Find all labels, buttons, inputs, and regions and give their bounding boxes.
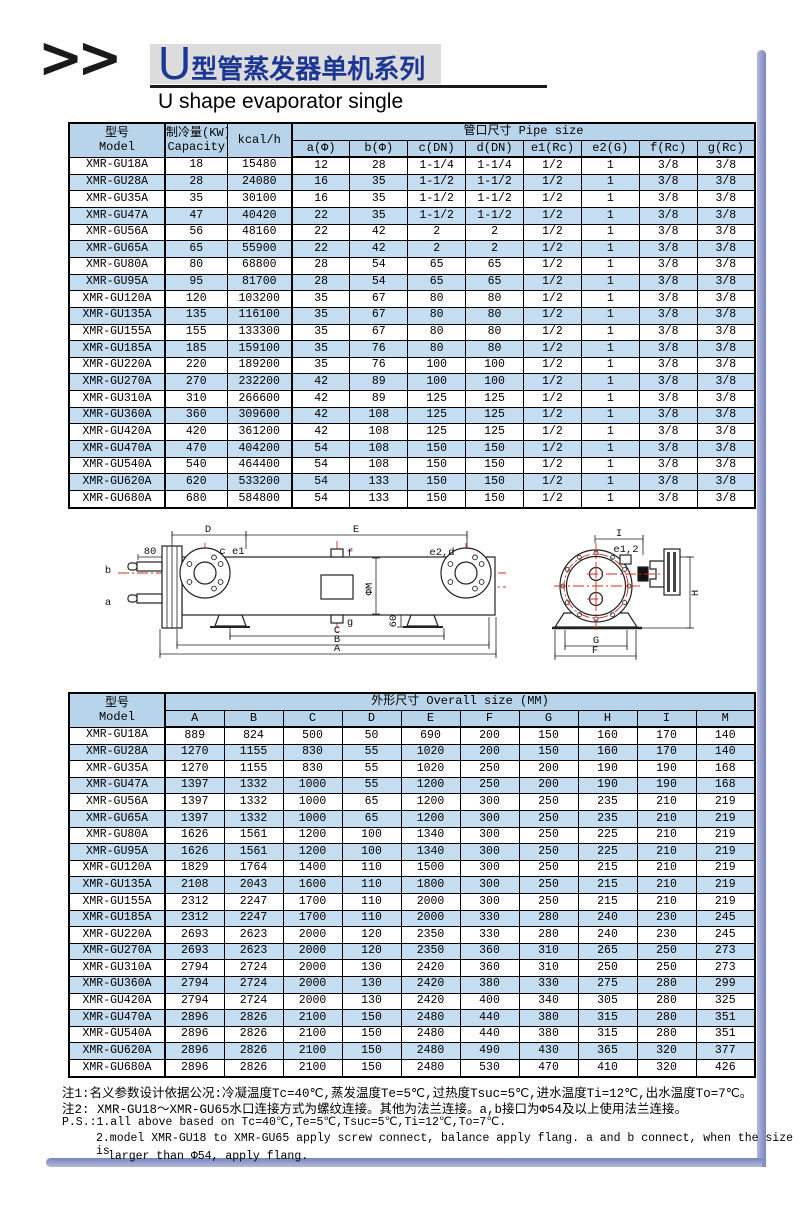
- value-cell: 250: [519, 894, 578, 911]
- value-cell: 42: [292, 374, 350, 391]
- value-cell: 210: [637, 860, 696, 877]
- model-cell: XMR-GU65A: [69, 811, 165, 828]
- value-cell: 55: [342, 761, 401, 778]
- model-cell: XMR-GU155A: [69, 894, 165, 911]
- value-cell: 1/2: [524, 291, 582, 308]
- column-header: D: [342, 710, 401, 727]
- value-cell: 2100: [283, 1010, 342, 1027]
- column-header: e1(Rc): [524, 140, 582, 157]
- column-header: a(Φ): [292, 140, 350, 157]
- value-cell: 1020: [401, 761, 460, 778]
- value-cell: 1270: [165, 761, 224, 778]
- value-cell: 2826: [224, 1043, 283, 1060]
- value-cell: 250: [578, 960, 637, 977]
- value-cell: 3/8: [697, 441, 755, 458]
- value-cell: 3/8: [639, 324, 697, 341]
- value-cell: 210: [637, 894, 696, 911]
- table-row: XMR-GU270A27023220042891001001/213/83/8: [69, 374, 755, 391]
- value-cell: 2623: [224, 927, 283, 944]
- value-cell: 140: [696, 727, 755, 744]
- value-cell: 200: [460, 744, 519, 761]
- value-cell: 215: [578, 860, 637, 877]
- value-cell: 2724: [224, 993, 283, 1010]
- value-cell: 2108: [165, 877, 224, 894]
- model-cell: XMR-GU420A: [69, 993, 165, 1010]
- value-cell: 16: [292, 174, 350, 191]
- value-cell: 1: [581, 257, 639, 274]
- model-cell: XMR-GU540A: [69, 1026, 165, 1043]
- value-cell: 250: [519, 860, 578, 877]
- value-cell: 1020: [401, 744, 460, 761]
- value-cell: 3/8: [639, 457, 697, 474]
- value-cell: 48160: [227, 224, 292, 241]
- value-cell: 65: [466, 274, 524, 291]
- page-title: U型管蒸发器单机系列: [150, 44, 441, 84]
- value-cell: 150: [408, 490, 466, 508]
- table-row: XMR-GU28A1270115583055102020015016017014…: [69, 744, 755, 761]
- value-cell: 150: [466, 474, 524, 491]
- value-cell: 377: [696, 1043, 755, 1060]
- value-cell: 1: [581, 474, 639, 491]
- value-cell: 240: [578, 910, 637, 927]
- value-cell: 1155: [224, 761, 283, 778]
- value-cell: 55900: [227, 241, 292, 258]
- value-cell: 2896: [165, 1043, 224, 1060]
- table-row: XMR-GU360A360309600421081251251/213/83/8: [69, 407, 755, 424]
- value-cell: 54: [292, 457, 350, 474]
- value-cell: 108: [350, 424, 408, 441]
- value-cell: 150: [408, 457, 466, 474]
- value-cell: 2: [466, 241, 524, 258]
- value-cell: 3/8: [697, 307, 755, 324]
- value-cell: 1500: [401, 860, 460, 877]
- value-cell: 150: [342, 1010, 401, 1027]
- model-cell: XMR-GU680A: [69, 1059, 165, 1077]
- model-cell: XMR-GU80A: [69, 827, 165, 844]
- dim-label-a: A: [334, 643, 341, 655]
- value-cell: 2000: [401, 894, 460, 911]
- value-cell: 3/8: [639, 191, 697, 208]
- value-cell: 80: [408, 324, 466, 341]
- value-cell: 690: [401, 727, 460, 744]
- value-cell: 110: [342, 910, 401, 927]
- model-cell: XMR-GU56A: [69, 224, 165, 241]
- value-cell: 1340: [401, 844, 460, 861]
- value-cell: 365: [578, 1043, 637, 1060]
- value-cell: 168: [696, 761, 755, 778]
- value-cell: 830: [283, 744, 342, 761]
- value-cell: 225: [578, 827, 637, 844]
- value-cell: 28: [292, 274, 350, 291]
- value-cell: 2312: [165, 910, 224, 927]
- value-cell: 3/8: [639, 307, 697, 324]
- model-cell: XMR-GU95A: [69, 844, 165, 861]
- table-row: XMR-GU220A269326232000120235033028024023…: [69, 927, 755, 944]
- value-cell: 108: [350, 407, 408, 424]
- model-cell: XMR-GU220A: [69, 927, 165, 944]
- capacity-header: 制冷量(KW) Capacity: [165, 123, 227, 157]
- model-cell: XMR-GU47A: [69, 777, 165, 794]
- value-cell: 490: [460, 1043, 519, 1060]
- value-cell: 55: [342, 744, 401, 761]
- value-cell: 1/2: [524, 441, 582, 458]
- value-cell: 120: [342, 927, 401, 944]
- model-header: 型号 Model: [69, 693, 165, 727]
- value-cell: 120: [165, 291, 227, 308]
- value-cell: 30100: [227, 191, 292, 208]
- value-cell: 1-1/2: [466, 174, 524, 191]
- value-cell: 280: [637, 977, 696, 994]
- value-cell: 2623: [224, 943, 283, 960]
- value-cell: 1000: [283, 811, 342, 828]
- value-cell: 533200: [227, 474, 292, 491]
- value-cell: 1/2: [524, 257, 582, 274]
- value-cell: 210: [637, 811, 696, 828]
- label-e2-d: e2,d: [429, 547, 454, 559]
- value-cell: 160: [578, 727, 637, 744]
- table-row: XMR-GU47A1397133210005512002502001901901…: [69, 777, 755, 794]
- value-cell: 470: [165, 441, 227, 458]
- value-cell: 35: [350, 174, 408, 191]
- value-cell: 1: [581, 291, 639, 308]
- value-cell: 320: [637, 1043, 696, 1060]
- column-header: g(Rc): [697, 140, 755, 157]
- model-cell: XMR-GU270A: [69, 374, 165, 391]
- value-cell: 3/8: [697, 357, 755, 374]
- value-cell: 3/8: [697, 208, 755, 225]
- value-cell: 100: [408, 374, 466, 391]
- value-cell: 300: [460, 894, 519, 911]
- value-cell: 150: [342, 1059, 401, 1077]
- column-header: F: [460, 710, 519, 727]
- value-cell: 1332: [224, 777, 283, 794]
- value-cell: 360: [165, 407, 227, 424]
- value-cell: 1700: [283, 894, 342, 911]
- value-cell: 500: [283, 727, 342, 744]
- value-cell: 130: [342, 993, 401, 1010]
- value-cell: 150: [342, 1043, 401, 1060]
- model-cell: XMR-GU18A: [69, 157, 165, 174]
- value-cell: 1/2: [524, 174, 582, 191]
- dim-label-i: I: [616, 528, 622, 540]
- value-cell: 1: [581, 208, 639, 225]
- value-cell: 1/2: [524, 224, 582, 241]
- value-cell: 300: [460, 877, 519, 894]
- value-cell: 42: [292, 391, 350, 408]
- value-cell: 65: [165, 241, 227, 258]
- value-cell: 2100: [283, 1059, 342, 1077]
- value-cell: 1: [581, 274, 639, 291]
- table-row: XMR-GU420A420361200421081251251/213/83/8: [69, 424, 755, 441]
- value-cell: 120: [342, 943, 401, 960]
- value-cell: 2100: [283, 1026, 342, 1043]
- value-cell: 65: [466, 257, 524, 274]
- value-cell: 280: [519, 910, 578, 927]
- table-row: XMR-GU47A474042022351-1/21-1/21/213/83/8: [69, 208, 755, 225]
- model-cell: XMR-GU18A: [69, 727, 165, 744]
- value-cell: 3/8: [697, 241, 755, 258]
- value-cell: 330: [519, 977, 578, 994]
- model-cell: XMR-GU310A: [69, 960, 165, 977]
- table-row: XMR-GU470A470404200541081501501/213/83/8: [69, 441, 755, 458]
- value-cell: 81700: [227, 274, 292, 291]
- value-cell: 1200: [283, 844, 342, 861]
- value-cell: 1200: [283, 827, 342, 844]
- value-cell: 16: [292, 191, 350, 208]
- value-cell: 1: [581, 241, 639, 258]
- value-cell: 133: [350, 490, 408, 508]
- table-row: XMR-GU680A289628262100150248053047041032…: [69, 1059, 755, 1077]
- dim-label-e: E: [353, 524, 359, 536]
- model-cell: XMR-GU35A: [69, 191, 165, 208]
- value-cell: 1/2: [524, 424, 582, 441]
- value-cell: 1400: [283, 860, 342, 877]
- table-row: XMR-GU540A540464400541081501501/213/83/8: [69, 457, 755, 474]
- table-row: XMR-GU120A182917641400110150030025021521…: [69, 860, 755, 877]
- value-cell: 270: [165, 374, 227, 391]
- value-cell: 2420: [401, 960, 460, 977]
- value-cell: 40420: [227, 208, 292, 225]
- value-cell: 1/2: [524, 407, 582, 424]
- value-cell: 245: [696, 927, 755, 944]
- value-cell: 1/2: [524, 474, 582, 491]
- value-cell: 108: [350, 441, 408, 458]
- value-cell: 3/8: [697, 224, 755, 241]
- value-cell: 280: [637, 993, 696, 1010]
- value-cell: 300: [460, 860, 519, 877]
- value-cell: 464400: [227, 457, 292, 474]
- value-cell: 150: [466, 490, 524, 508]
- value-cell: 351: [696, 1026, 755, 1043]
- value-cell: 159100: [227, 341, 292, 358]
- title-initial: U: [158, 45, 191, 83]
- value-cell: 3/8: [639, 474, 697, 491]
- value-cell: 3/8: [697, 341, 755, 358]
- title-text: 型管蒸发器单机系列: [191, 56, 425, 83]
- pipe-size-group-header: 管口尺寸 Pipe size: [292, 123, 755, 140]
- value-cell: 2693: [165, 927, 224, 944]
- value-cell: 3/8: [639, 257, 697, 274]
- value-cell: 3/8: [697, 407, 755, 424]
- model-cell: XMR-GU360A: [69, 977, 165, 994]
- value-cell: 35: [292, 291, 350, 308]
- model-cell: XMR-GU35A: [69, 761, 165, 778]
- value-cell: 1800: [401, 877, 460, 894]
- value-cell: 266600: [227, 391, 292, 408]
- model-cell: XMR-GU135A: [69, 307, 165, 324]
- value-cell: 1: [581, 224, 639, 241]
- value-cell: 125: [466, 407, 524, 424]
- column-header: B: [224, 710, 283, 727]
- value-cell: 310: [165, 391, 227, 408]
- model-cell: XMR-GU120A: [69, 291, 165, 308]
- value-cell: 2350: [401, 927, 460, 944]
- value-cell: 3/8: [639, 407, 697, 424]
- value-cell: 2896: [165, 1010, 224, 1027]
- value-cell: 80: [466, 291, 524, 308]
- table-row: XMR-GU65A1397133210006512003002502352102…: [69, 811, 755, 828]
- value-cell: 150: [519, 744, 578, 761]
- ps-note-2-continued: larger than Φ54, apply flang.: [108, 1150, 308, 1163]
- value-cell: 1: [581, 407, 639, 424]
- value-cell: 185: [165, 341, 227, 358]
- value-cell: 89: [350, 391, 408, 408]
- value-cell: 2480: [401, 1043, 460, 1060]
- value-cell: 150: [519, 727, 578, 744]
- value-cell: 680: [165, 490, 227, 508]
- value-cell: 300: [460, 794, 519, 811]
- value-cell: 3/8: [639, 374, 697, 391]
- value-cell: 620: [165, 474, 227, 491]
- table-row: XMR-GU620A289628262100150248049043036532…: [69, 1043, 755, 1060]
- value-cell: 42: [350, 224, 408, 241]
- column-header: H: [578, 710, 637, 727]
- value-cell: 95: [165, 274, 227, 291]
- value-cell: 824: [224, 727, 283, 744]
- dim-label-d: D: [205, 524, 211, 536]
- value-cell: 56: [165, 224, 227, 241]
- value-cell: 80: [466, 324, 524, 341]
- value-cell: 3/8: [697, 474, 755, 491]
- value-cell: 42: [292, 407, 350, 424]
- page-subtitle: U shape evaporator single: [158, 90, 403, 114]
- model-cell: XMR-GU470A: [69, 1010, 165, 1027]
- value-cell: 2480: [401, 1010, 460, 1027]
- value-cell: 200: [519, 761, 578, 778]
- table-row: XMR-GU95A9581700285465651/213/83/8: [69, 274, 755, 291]
- value-cell: 2420: [401, 993, 460, 1010]
- value-cell: 130: [342, 977, 401, 994]
- value-cell: 1/2: [524, 341, 582, 358]
- value-cell: 225: [578, 844, 637, 861]
- value-cell: 219: [696, 844, 755, 861]
- model-cell: XMR-GU120A: [69, 860, 165, 877]
- value-cell: 1397: [165, 811, 224, 828]
- port-label-a: a: [105, 597, 111, 609]
- value-cell: 305: [578, 993, 637, 1010]
- value-cell: 210: [637, 794, 696, 811]
- value-cell: 110: [342, 877, 401, 894]
- value-cell: 219: [696, 827, 755, 844]
- value-cell: 2480: [401, 1059, 460, 1077]
- value-cell: 2794: [165, 960, 224, 977]
- value-cell: 190: [637, 761, 696, 778]
- value-cell: 150: [466, 441, 524, 458]
- value-cell: 2043: [224, 877, 283, 894]
- value-cell: 35: [165, 191, 227, 208]
- value-cell: 2000: [283, 993, 342, 1010]
- value-cell: 116100: [227, 307, 292, 324]
- value-cell: 1/2: [524, 324, 582, 341]
- value-cell: 133300: [227, 324, 292, 341]
- value-cell: 1: [581, 424, 639, 441]
- table-row: XMR-GU28A282408016351-1/21-1/21/213/83/8: [69, 174, 755, 191]
- value-cell: 80: [466, 341, 524, 358]
- model-cell: XMR-GU360A: [69, 407, 165, 424]
- table-row: XMR-GU620A620533200541331501501/213/83/8: [69, 474, 755, 491]
- technical-drawing: D E 80 b a f g c e1 e2,d ΦM 60 C B A: [60, 513, 760, 691]
- value-cell: 250: [519, 794, 578, 811]
- value-cell: 470: [519, 1059, 578, 1077]
- value-cell: 1-1/2: [408, 208, 466, 225]
- column-header: b(Φ): [350, 140, 408, 157]
- value-cell: 2826: [224, 1010, 283, 1027]
- value-cell: 2: [408, 224, 466, 241]
- value-cell: 1270: [165, 744, 224, 761]
- value-cell: 300: [460, 827, 519, 844]
- value-cell: 1200: [401, 777, 460, 794]
- value-cell: 1700: [283, 910, 342, 927]
- value-cell: 361200: [227, 424, 292, 441]
- value-cell: 3/8: [639, 291, 697, 308]
- value-cell: 3/8: [697, 374, 755, 391]
- value-cell: 1: [581, 457, 639, 474]
- table-row: XMR-GU360A279427242000130242038033027528…: [69, 977, 755, 994]
- value-cell: 54: [292, 490, 350, 508]
- value-cell: 360: [460, 960, 519, 977]
- model-cell: XMR-GU65A: [69, 241, 165, 258]
- model-cell: XMR-GU185A: [69, 341, 165, 358]
- model-cell: XMR-GU310A: [69, 391, 165, 408]
- value-cell: 2480: [401, 1026, 460, 1043]
- value-cell: 889: [165, 727, 224, 744]
- value-cell: 2693: [165, 943, 224, 960]
- table-row: XMR-GU95A1626156112001001340300250225210…: [69, 844, 755, 861]
- value-cell: 135: [165, 307, 227, 324]
- value-cell: 3/8: [697, 257, 755, 274]
- value-cell: 1200: [401, 794, 460, 811]
- model-cell: XMR-GU155A: [69, 324, 165, 341]
- model-cell: XMR-GU28A: [69, 744, 165, 761]
- value-cell: 1626: [165, 827, 224, 844]
- model-cell: XMR-GU135A: [69, 877, 165, 894]
- value-cell: 1: [581, 374, 639, 391]
- value-cell: 1: [581, 341, 639, 358]
- value-cell: 110: [342, 894, 401, 911]
- value-cell: 310: [519, 960, 578, 977]
- value-cell: 125: [408, 424, 466, 441]
- value-cell: 360: [460, 943, 519, 960]
- value-cell: 273: [696, 960, 755, 977]
- column-header: C: [283, 710, 342, 727]
- value-cell: 24080: [227, 174, 292, 191]
- value-cell: 1: [581, 324, 639, 341]
- value-cell: 3/8: [697, 191, 755, 208]
- column-header: c(DN): [408, 140, 466, 157]
- port-label-f: f: [347, 548, 353, 560]
- value-cell: 3/8: [697, 457, 755, 474]
- value-cell: 3/8: [697, 391, 755, 408]
- value-cell: 250: [637, 943, 696, 960]
- table-row: XMR-GU65A65559002242221/213/83/8: [69, 241, 755, 258]
- value-cell: 1/2: [524, 208, 582, 225]
- value-cell: 28: [292, 257, 350, 274]
- column-header: d(DN): [466, 140, 524, 157]
- value-cell: 125: [466, 391, 524, 408]
- value-cell: 150: [342, 1026, 401, 1043]
- column-header: e2(G): [581, 140, 639, 157]
- value-cell: 3/8: [639, 424, 697, 441]
- value-cell: 250: [519, 811, 578, 828]
- value-cell: 245: [696, 910, 755, 927]
- value-cell: 2000: [283, 943, 342, 960]
- value-cell: 130: [342, 960, 401, 977]
- kcal-header: kcal/h: [227, 123, 292, 157]
- value-cell: 1561: [224, 844, 283, 861]
- value-cell: 1829: [165, 860, 224, 877]
- value-cell: 440: [460, 1010, 519, 1027]
- value-cell: 219: [696, 811, 755, 828]
